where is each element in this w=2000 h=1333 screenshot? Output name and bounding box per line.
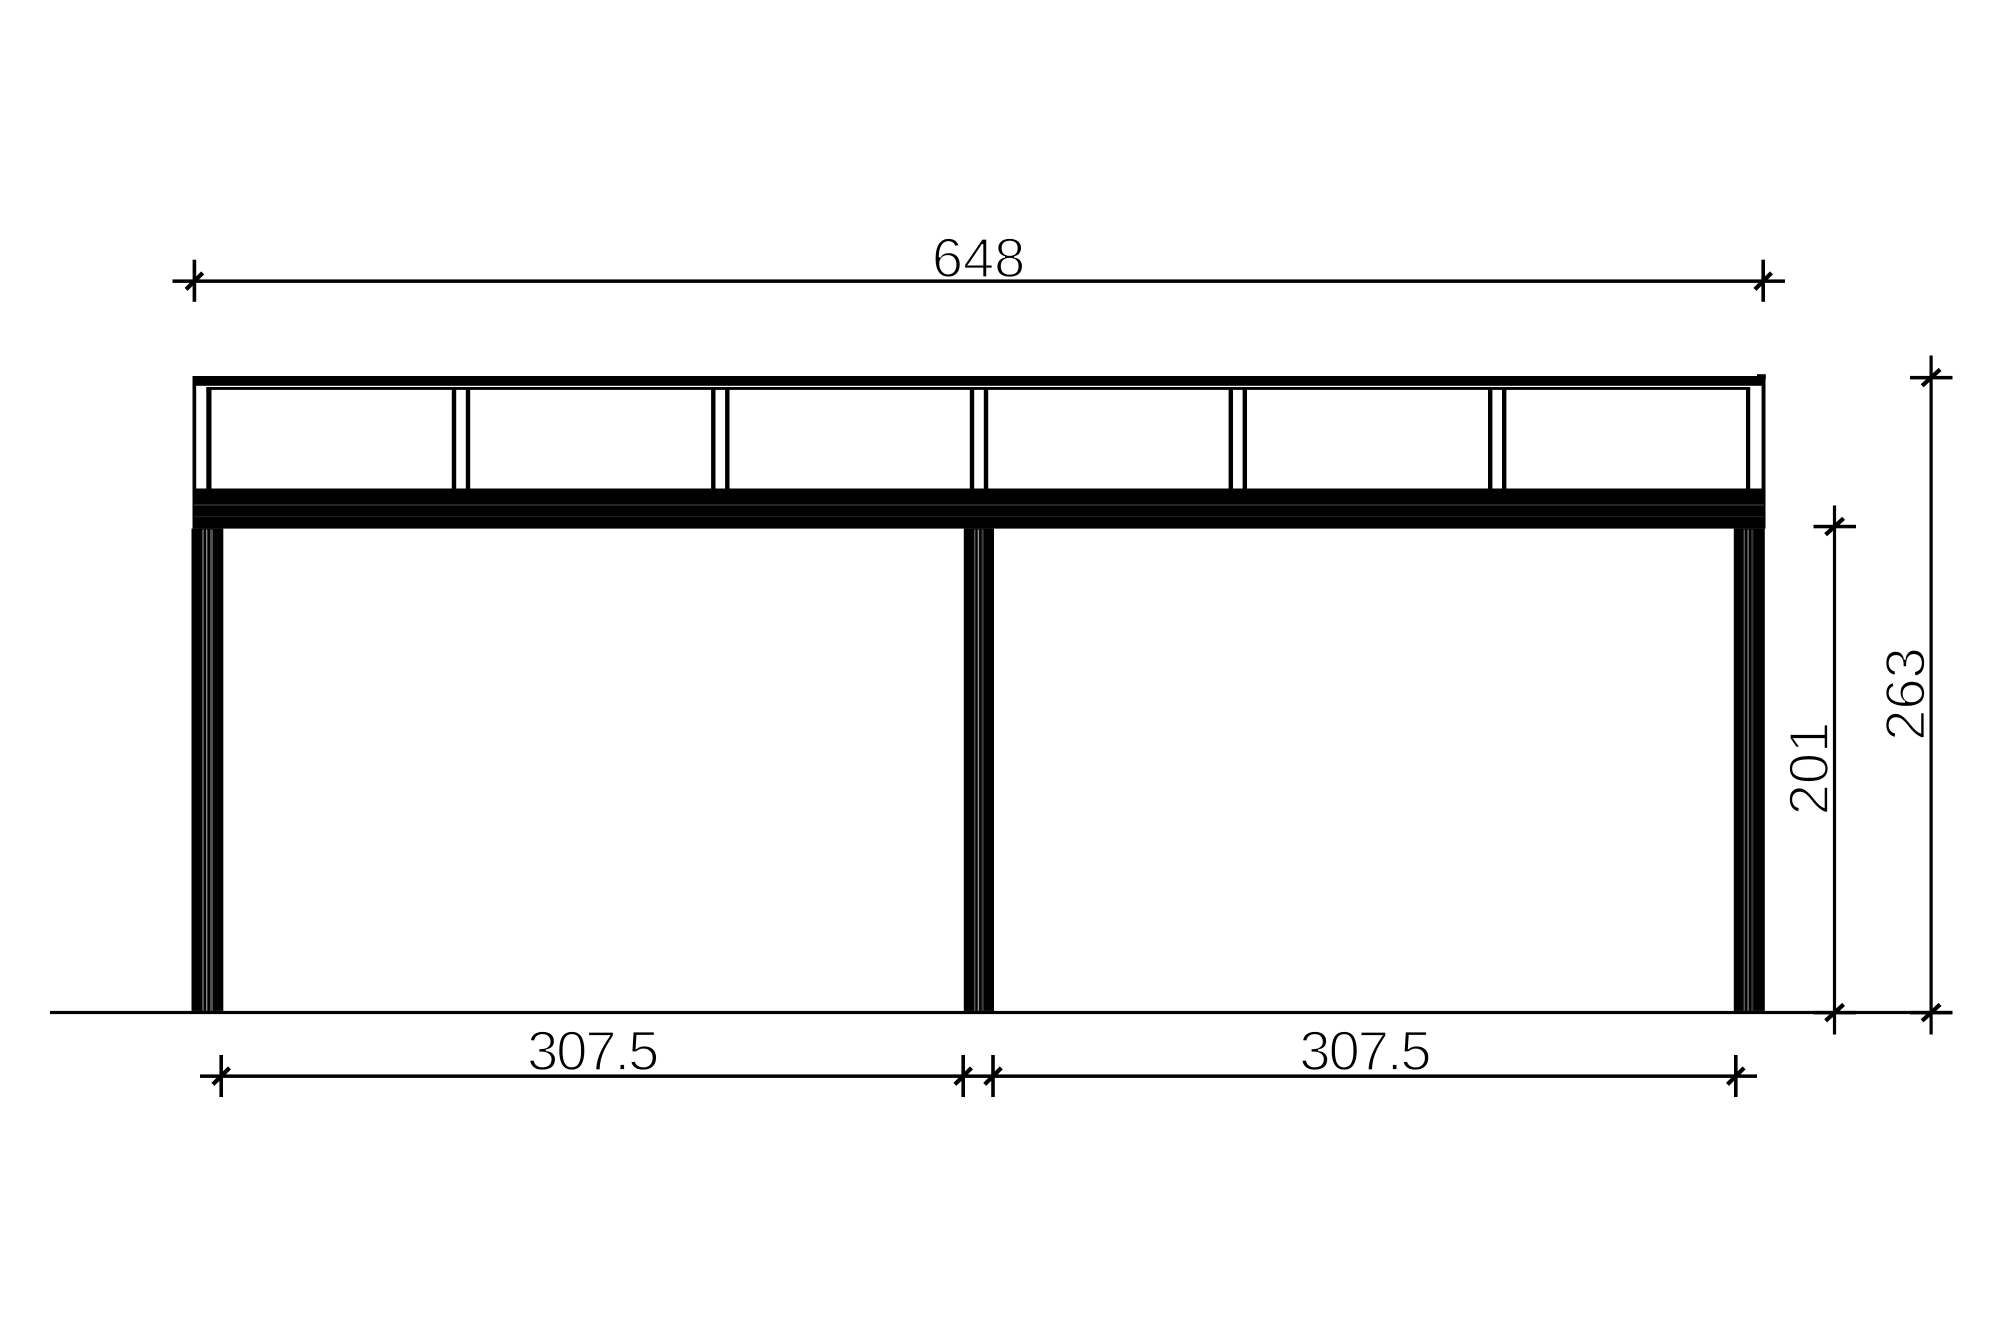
svg-text:201: 201 <box>1777 722 1840 815</box>
svg-text:307.5: 307.5 <box>527 1019 657 1082</box>
svg-text:307.5: 307.5 <box>1299 1019 1429 1082</box>
svg-text:263: 263 <box>1873 647 1936 740</box>
svg-text:648: 648 <box>932 226 1025 289</box>
